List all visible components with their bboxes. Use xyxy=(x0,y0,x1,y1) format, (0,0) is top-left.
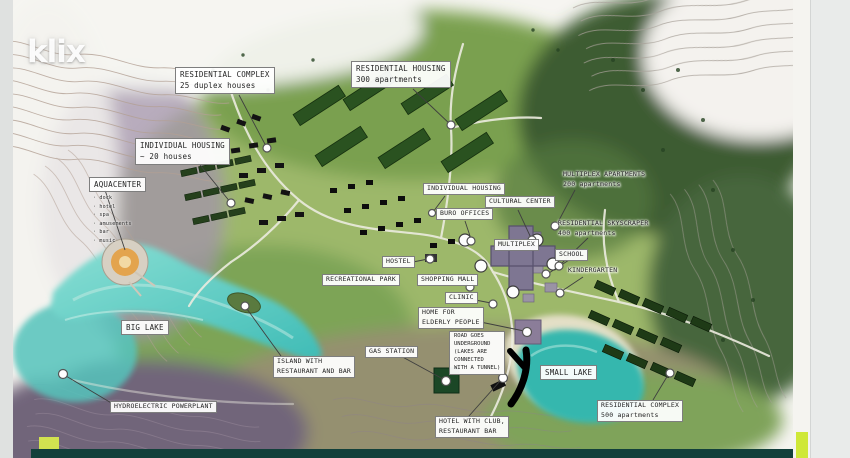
label-school: SCHOOL xyxy=(555,249,588,261)
label-clinic: CLINIC xyxy=(445,292,478,304)
label-kindergarten: KINDERGARTEN xyxy=(568,266,617,276)
label-island: ISLAND WITH RESTAURANT AND BAR xyxy=(273,356,355,378)
label-aquacenter: AQUACENTER xyxy=(89,177,146,192)
label-recreational-park: RECREATIONAL PARK xyxy=(322,274,400,286)
klix-watermark-logo: klix xyxy=(27,34,85,70)
label-aquacenter-list: · dock · hotel · spa · amusements · bar … xyxy=(93,194,132,245)
label-hydroelectric: HYDROELECTRIC POWERPLANT xyxy=(110,401,217,413)
label-road-note: ROAD GOES UNDERGROUND (LAKES ARE CONNECT… xyxy=(449,331,505,375)
label-residential-complex-500: RESIDENTIAL COMPLEX 500 apartments xyxy=(597,400,683,422)
label-residential-skyscraper: RESIDENTIAL SKYSCRAPER 400 apartments xyxy=(558,219,649,239)
accent-block-right xyxy=(796,432,808,458)
label-multiplex: MULTIPLEX xyxy=(494,239,539,251)
label-buro-offices: BURO OFFICES xyxy=(436,208,493,220)
label-small-lake: SMALL LAKE xyxy=(540,365,597,380)
label-residential-complex-25: RESIDENTIAL COMPLEX 25 duplex houses xyxy=(175,67,275,94)
label-multiplex-apartments: MULTIPLEX APARTMENTS 200 apartments xyxy=(563,170,645,190)
label-big-lake: BIG LAKE xyxy=(121,320,169,335)
right-margin xyxy=(810,0,850,458)
page: klix RESIDENTIAL COMPLEX 25 duplex house… xyxy=(0,0,850,458)
label-cultural-center: CULTURAL CENTER xyxy=(485,196,555,208)
left-margin xyxy=(0,0,13,458)
label-individual-housing: INDIVIDUAL HOUSING xyxy=(423,183,505,195)
label-hotel-club: HOTEL WITH CLUB, RESTAURANT BAR xyxy=(435,416,509,438)
label-residential-housing-300: RESIDENTIAL HOUSING 300 apartments xyxy=(351,61,451,88)
accent-block-left xyxy=(39,437,59,449)
label-home-for-elderly: HOME FOR ELDERLY PEOPLE xyxy=(418,307,484,329)
label-hostel: HOSTEL xyxy=(382,256,415,268)
label-shopping-mall: SHOPPING MALL xyxy=(417,274,478,286)
bottom-photo-strip xyxy=(31,449,801,458)
right-paper-strip xyxy=(793,0,810,458)
masterplan-image: klix RESIDENTIAL COMPLEX 25 duplex house… xyxy=(13,0,810,458)
label-gas-station: GAS STATION xyxy=(365,346,418,358)
label-individual-housing-20: INDIVIDUAL HOUSING ~ 20 houses xyxy=(135,138,230,165)
